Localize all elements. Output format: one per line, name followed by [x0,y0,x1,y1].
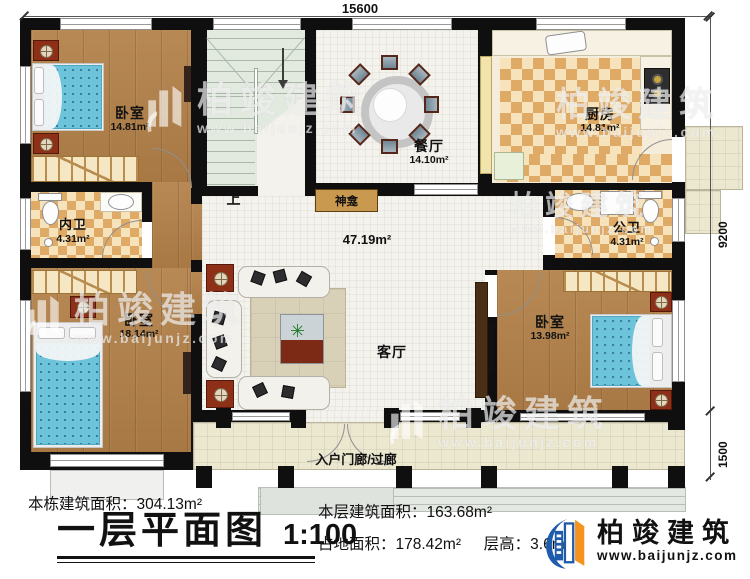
porch-column [278,466,294,488]
watermark-text: 柏竣建筑 [438,393,610,434]
dimension-right-height: 9200 [716,221,730,248]
watermark-text: 柏竣建筑 [510,190,650,221]
porch-column [216,408,231,428]
plant: ✳ [290,322,305,340]
wardrobe [31,156,139,182]
label-entry-porch: 入户门廊/过廊 [300,453,412,468]
watermark-logo-icon [388,396,430,446]
nightstand [33,40,59,61]
floor-area-value: 163.68m² [427,504,492,521]
watermark: 柏竣建筑 www.baijunjz.com [145,82,369,135]
toilet-tank [38,193,62,201]
pillow [34,99,44,126]
room-area: 47.19m² [322,233,412,248]
dining-cabinet [480,56,492,174]
window-top-bedroom [60,18,152,30]
porch-column [481,466,497,488]
watermark-text: 柏竣建筑 [74,289,246,330]
window-top-stairs [213,18,301,30]
brand-logo: 柏竣建筑 www.baijunjz.com [540,512,738,570]
entry-door-opening [306,410,384,422]
watermark-url: www.baijunjz.com [197,121,369,135]
plan-title-underline-2 [57,562,315,563]
watermark: 柏竣建筑 www.baijunjz.com [388,396,610,449]
watermark-logo-icon [24,292,66,342]
window-bottom-bedroom-bl [50,454,164,467]
watermark-text: 柏竣建筑 [556,86,720,124]
porch-column [196,466,212,488]
porch-column [668,408,685,430]
floor-area: 本层建筑面积：163.68m² [318,500,492,522]
watermark: 柏竣建筑 www.baijunjz.com [510,192,654,235]
floor-plan-page: ✳ 神龛 卧室 14.81m² 内卫 4.31m² 卧室 18.14m² 餐厅 … [0,0,750,579]
watermark: 柏竣建筑 www.baijunjz.com [556,88,720,139]
sofa-cushion [281,385,295,399]
footprint-and-height: 占地面积：178.42m² 层高：3.6m [318,532,565,554]
watermark-url: www.baijunjz.com [438,435,610,449]
dining-chair [381,55,398,70]
pillow [652,352,663,381]
label-inner-bathroom: 内卫 4.31m² [28,218,118,245]
porch-column [612,466,628,488]
wardrobe [563,271,672,292]
room-area: 14.10m² [384,154,474,166]
label-dining: 餐厅 14.10m² [384,138,474,166]
dining-chair [424,96,439,113]
label-stairs-direction: 上 [221,191,247,207]
nightstand [650,390,672,410]
tv-cabinet-living [475,282,488,398]
dimension-right-porch-depth: 1500 [716,441,730,468]
stairs-direction: 上 [221,191,247,207]
side-table [206,264,234,292]
watermark-text: 柏竣建筑 [197,79,369,120]
door-gap-inner-bath [142,222,152,258]
window-top-kitchen [536,18,626,30]
fridge [494,152,524,180]
stairs-arrow-line [282,48,284,80]
sliding-door-dining [414,184,478,195]
window-top-dining [352,18,452,30]
corridor-floor [152,182,191,268]
porch-column [396,466,412,488]
room-name: 餐厅 [384,138,474,154]
corridor-hall-join [191,204,202,260]
shrine-cabinet: 神龛 [315,189,378,212]
door-gap-kitchen-east [672,137,685,182]
nightstand [650,292,672,312]
room-name: 内卫 [28,218,118,233]
watermark-url: www.baijunjz.com [74,331,246,345]
brand-website: www.baijunjz.com [597,548,738,563]
shrine-label: 神龛 [335,193,358,209]
label-living-area: 47.19m² [322,233,412,248]
window-left-bedroom-tl [20,66,31,144]
room-name: 卧室 [505,314,595,330]
porch-column [668,466,685,488]
plan-title-row: 一层平面图 1:100 [57,512,357,550]
dimension-top-width: 15600 [325,0,395,18]
bed-sheet [632,316,650,386]
watermark-logo-icon [145,82,189,134]
room-area: 13.98m² [505,330,595,342]
side-table [206,380,234,408]
tv-living [488,325,494,373]
window-right-bedroom-br [672,300,685,382]
room-name: 入户门廊/过廊 [300,453,412,468]
floor-area-label: 本层建筑面积： [318,504,427,521]
pillow [34,67,44,94]
plan-title: 一层平面图 [57,512,267,550]
height-label: 层高： [484,536,531,553]
label-living-name: 客厅 [360,344,424,360]
tv-bedroom-bl [183,352,191,394]
brand-logo-icon [540,512,588,570]
plan-title-underline [57,556,315,559]
window-right-public-bath [672,198,685,242]
dining-table-top [373,88,407,122]
label-bedroom-bottom-right: 卧室 13.98m² [505,314,595,342]
footprint-label: 占地面积： [318,536,396,553]
room-name: 客厅 [360,344,424,360]
sink [108,194,134,210]
room-area: 4.31m² [28,233,118,245]
watermark-url: www.baijunjz.com [556,125,720,139]
stairs-opening [258,186,305,196]
room-area: 4.31m² [582,236,672,248]
watermark: 柏竣建筑 www.baijunjz.com [24,292,246,345]
porch-column [291,408,306,428]
footprint-value: 178.42m² [396,536,461,553]
pillow [652,318,663,347]
brand-name: 柏竣建筑 [597,519,738,547]
nightstand [33,133,59,154]
watermark-url: www.baijunjz.com [510,223,654,235]
window-south-living-1 [232,412,290,421]
